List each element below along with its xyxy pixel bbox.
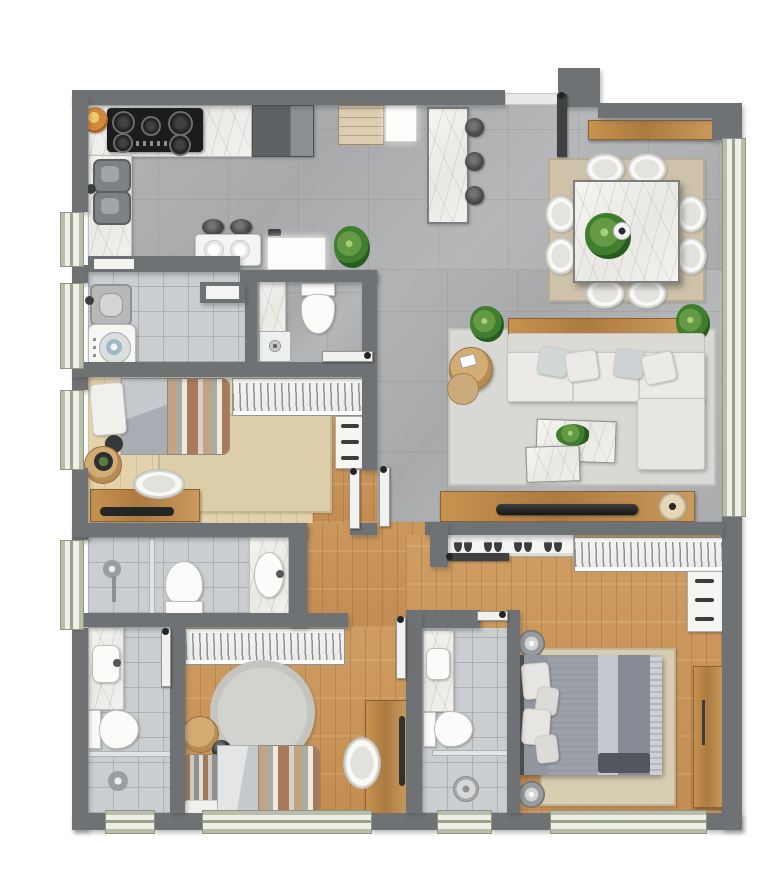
dining-chair xyxy=(676,196,706,232)
bathroom1-shower-glass xyxy=(149,538,155,615)
window-laundry-left xyxy=(60,283,84,369)
wall-powder-top xyxy=(240,270,377,282)
kitchen-cabinet xyxy=(267,237,326,270)
bathroom2-sink-faucet xyxy=(113,659,121,667)
laundry-tank xyxy=(90,284,132,326)
refrigerator xyxy=(252,105,314,157)
wall-bottom-2 xyxy=(153,813,202,830)
wall-left-5 xyxy=(72,628,88,830)
entrance-door-leaf xyxy=(557,94,567,157)
window-bedroom2-bottom xyxy=(202,810,372,834)
burner xyxy=(169,134,191,156)
bathroom3-sink xyxy=(426,648,450,680)
door-hinge xyxy=(446,553,453,560)
table-vase xyxy=(613,222,631,240)
bedroom2-door-leaf xyxy=(396,617,406,679)
bedroom2-chair xyxy=(344,738,380,788)
bedroom1-chair xyxy=(134,470,184,498)
bedroom1-wardrobe xyxy=(232,378,364,416)
decor-bowl xyxy=(658,492,687,521)
bar-stool xyxy=(465,186,484,205)
bedroom2-bed-duvet xyxy=(217,745,261,817)
master-bed xyxy=(517,655,662,775)
wall-bathroom1-top xyxy=(72,523,307,537)
plant xyxy=(470,306,504,342)
door-hinge xyxy=(558,92,565,99)
window-master-bottom xyxy=(550,810,707,834)
wall-niche xyxy=(206,286,239,299)
wall-bedroom2-bathroom3 xyxy=(406,610,422,813)
bar-stool xyxy=(465,152,484,171)
door-hinge xyxy=(397,616,404,623)
bedroom2-bed-pillow xyxy=(184,754,220,806)
pantry-cabinet xyxy=(338,105,384,145)
wall-left-2 xyxy=(72,265,88,283)
wall-bathroom3-right xyxy=(507,610,520,813)
wall-right-corner xyxy=(712,118,742,140)
tall-cabinet xyxy=(385,105,417,142)
kitchen-island xyxy=(427,107,469,224)
burner xyxy=(168,111,193,136)
bar-stool xyxy=(465,118,484,137)
bedroom2-desk-tv xyxy=(399,716,405,786)
wall-bottom-1 xyxy=(72,813,105,830)
powder-shower-tray xyxy=(259,331,291,362)
wall-top-right xyxy=(598,103,742,118)
floor-plan xyxy=(0,0,768,894)
drawer-handle xyxy=(695,598,714,602)
tank-faucet xyxy=(85,296,94,305)
dining-chair xyxy=(676,238,706,274)
wall-bathroom1-right xyxy=(289,523,307,627)
bedroom1-tv xyxy=(100,507,174,516)
master-nightlamp xyxy=(518,630,545,657)
door-hinge xyxy=(380,466,387,473)
bathroom2-shower-faucet xyxy=(108,771,128,791)
side-table-small xyxy=(447,373,479,405)
breakfast-stool xyxy=(230,219,252,235)
master-nightlamp xyxy=(518,781,545,808)
bathroom1-toilet-bowl xyxy=(165,561,203,605)
bathroom2-shower-glass xyxy=(88,751,172,757)
cooktop-knobs xyxy=(136,141,168,146)
wall-bedroom1-hall xyxy=(362,377,377,470)
door-hinge xyxy=(499,611,506,618)
bedroom1-bed-duvet xyxy=(121,378,170,455)
window-bathroom2-bottom xyxy=(105,810,155,834)
burner xyxy=(113,133,133,153)
drawer-handle xyxy=(341,424,359,428)
wall-bathroom2-right xyxy=(170,627,185,813)
master-duvet-fold xyxy=(598,753,650,773)
wall-bottom-5 xyxy=(705,813,742,830)
bathroom3-shower-glass xyxy=(432,750,510,756)
burner xyxy=(112,111,135,134)
bathroom3-shower-drain xyxy=(453,776,479,802)
plant xyxy=(334,226,370,268)
door-hinge xyxy=(364,352,371,359)
window-living-right xyxy=(722,138,746,517)
wall-top xyxy=(72,90,505,105)
wall-bathroom1-bottom xyxy=(72,613,348,627)
hall-door-leaf xyxy=(379,467,390,527)
bench-handle xyxy=(702,700,705,745)
drawer-handle xyxy=(695,579,714,583)
coffee-table-small xyxy=(525,445,580,483)
kitchen-sink-1 xyxy=(93,159,131,193)
drawer-handle xyxy=(341,440,359,444)
window-kitchen-left xyxy=(60,212,84,267)
burner xyxy=(141,116,161,136)
window-bathroom1-left xyxy=(60,540,84,630)
dining-chair xyxy=(546,238,576,274)
master-bench xyxy=(693,666,724,808)
door-hinge xyxy=(350,468,357,475)
shoe-pair xyxy=(544,537,564,556)
wall-powder-left xyxy=(245,282,257,363)
coffee-table-plant xyxy=(556,424,590,446)
bedroom1-bed-blanket xyxy=(167,378,230,455)
bathroom2-door-leaf xyxy=(161,629,171,687)
window-bathroom3-bottom xyxy=(437,810,492,834)
wall-powder-right xyxy=(362,270,377,363)
wall-master-top xyxy=(425,522,723,535)
wall-bottom-3 xyxy=(370,813,437,830)
bedroom1-plant-pot xyxy=(94,452,113,471)
tv xyxy=(496,504,638,515)
master-pillow xyxy=(534,734,559,764)
kitchen-sink-2 xyxy=(93,191,131,225)
shoe-pair xyxy=(514,537,534,556)
sofa-cushion xyxy=(564,349,600,383)
drawer-handle xyxy=(341,456,359,460)
door-hinge xyxy=(162,628,169,635)
wall-niche xyxy=(94,259,134,269)
window-bedroom1-left xyxy=(60,390,84,470)
entrance-threshold xyxy=(505,93,560,105)
master-wardrobe xyxy=(574,537,724,572)
powder-vanity xyxy=(259,279,286,333)
dining-sideboard xyxy=(588,120,714,140)
wall-mid-horizontal xyxy=(72,362,377,377)
wall-right-lower xyxy=(722,513,742,830)
drawer-handle xyxy=(695,617,714,621)
wall-left-1 xyxy=(72,95,88,212)
master-knit-throw xyxy=(650,655,662,775)
master-door-leaf xyxy=(447,553,509,561)
dining-chair xyxy=(546,196,576,232)
bedroom1-door-leaf xyxy=(349,469,360,529)
bathroom1-faucet-bar xyxy=(112,576,116,602)
wall-bottom-4 xyxy=(490,813,550,830)
cooktop xyxy=(107,108,203,152)
bathroom1-sink-faucet xyxy=(276,570,284,578)
cabinet-decor xyxy=(268,229,281,236)
wall-master-entry-stub xyxy=(430,522,448,567)
bedroom1-pillow xyxy=(89,382,127,437)
breakfast-stool xyxy=(202,219,224,235)
bedroom2-bed-blanket xyxy=(258,745,320,817)
sofa-chaise xyxy=(637,398,705,470)
